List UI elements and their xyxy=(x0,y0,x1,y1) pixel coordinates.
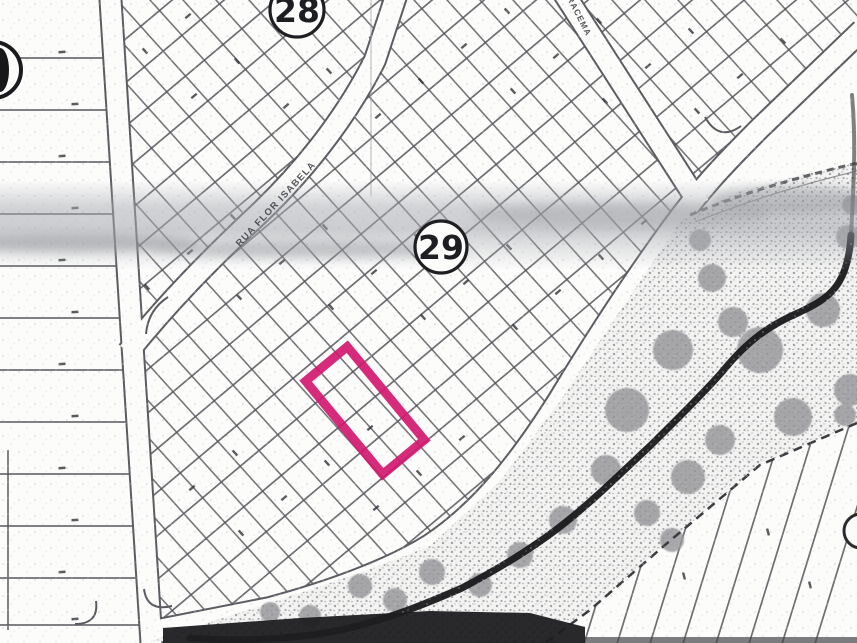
scanned-plat-map: 28 29 RUA FLOR ISABELA IRACEMA xyxy=(0,0,857,643)
scan-fold-line xyxy=(370,0,372,195)
plat-map-svg: 28 29 RUA FLOR ISABELA IRACEMA xyxy=(0,0,857,643)
block-29-badge: 29 xyxy=(415,221,467,273)
block-29-number: 29 xyxy=(418,228,464,267)
block-28-badge: 28 xyxy=(270,0,324,37)
scan-noise-overlay xyxy=(0,0,857,643)
block-28-number: 28 xyxy=(274,0,320,30)
